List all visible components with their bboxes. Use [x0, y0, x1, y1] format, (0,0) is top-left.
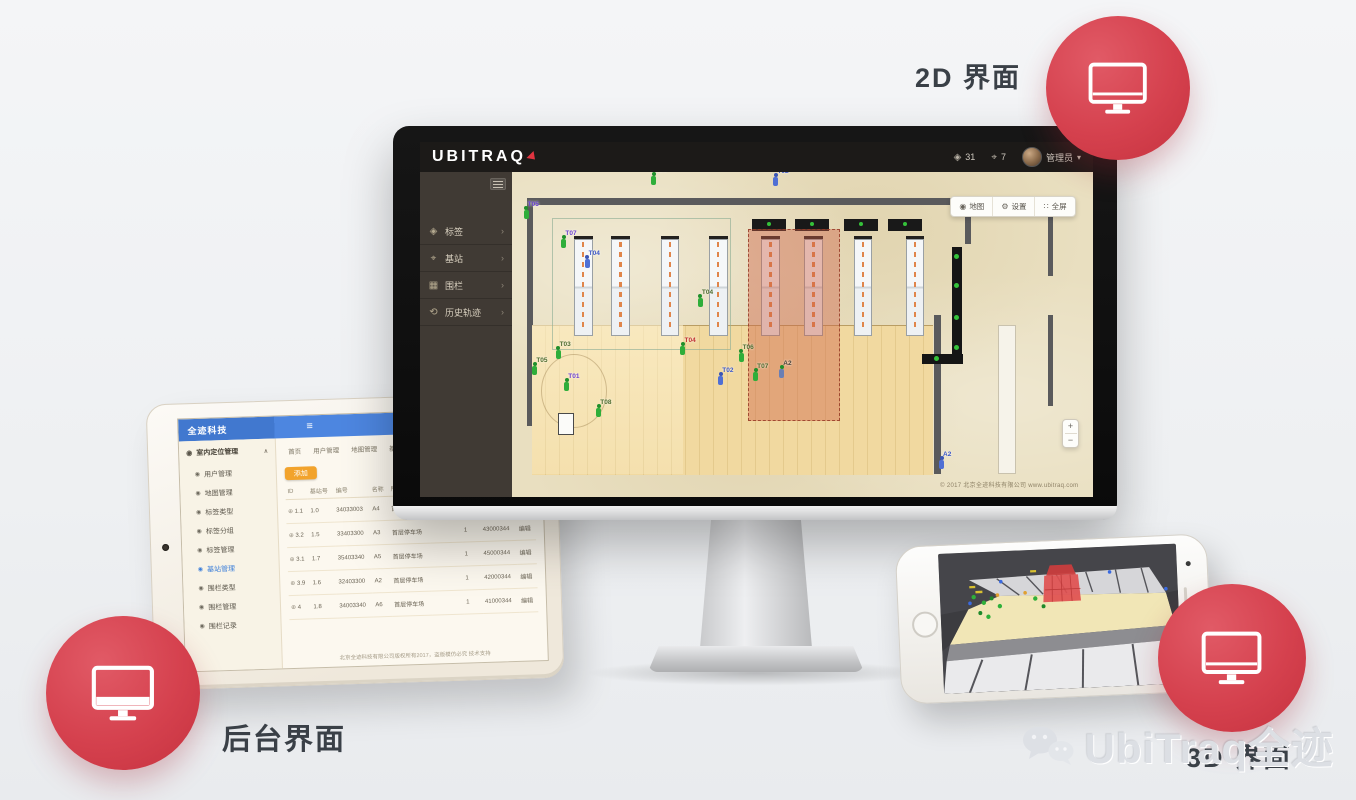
- add-button[interactable]: 添加: [285, 466, 317, 480]
- tag-marker-label: T04: [702, 289, 713, 296]
- anchor-count-icon: ⌖: [991, 152, 997, 163]
- tab[interactable]: 首页: [282, 443, 307, 458]
- sidebar-menu-item[interactable]: ⌖ 基站 ›: [420, 245, 512, 272]
- edit-link[interactable]: 编辑: [519, 588, 539, 613]
- tag-marker-label: T06: [743, 344, 754, 351]
- wall-wood-right: [934, 315, 941, 474]
- tab[interactable]: 用户管理: [307, 442, 345, 457]
- floorplan-map[interactable]: T04 T02 T05: [512, 172, 1093, 497]
- edit-link[interactable]: 编辑: [518, 564, 538, 589]
- desktop-monitor: UBITRAQ ◈ 31 ⌖ 7 管理员 ▾: [393, 126, 1117, 520]
- map-toolbar-icon: ∷: [1043, 202, 1048, 211]
- label-backend-interface: 后台界面: [222, 716, 346, 758]
- group-icon: ◉: [186, 449, 192, 457]
- tag-counter[interactable]: ◈ 31: [954, 152, 976, 163]
- person-marker-icon: [680, 346, 685, 355]
- watermark: UbiTraq全迹: [1019, 715, 1334, 776]
- tag-marker[interactable]: T07: [753, 370, 763, 384]
- scene-canvas: UBITRAQ ◈ 31 ⌖ 7 管理员 ▾: [0, 0, 1356, 800]
- map-toolbar-icon: ⚙: [1001, 202, 1008, 211]
- menu-item-label: 围栏管理: [208, 601, 236, 612]
- sidebar-item-label: 标签: [445, 225, 463, 238]
- tag-marker[interactable]: A2: [939, 458, 949, 472]
- corridor-column: [998, 325, 1017, 475]
- menu-item-dot-icon: ◉: [196, 509, 201, 516]
- person-marker-icon: [651, 176, 656, 185]
- map-toolbar-button[interactable]: ∷ 全屏: [1034, 197, 1074, 216]
- tag-marker[interactable]: T02: [773, 175, 783, 189]
- person-marker-icon: [564, 382, 569, 391]
- tablet-sidebar: ◉ 室内定位管理 ∧ ◉ 用户管理 ◉: [179, 438, 283, 671]
- person-marker-icon: [718, 376, 723, 385]
- sidebar-item-icon: ◈: [428, 226, 439, 237]
- zoom-out-button[interactable]: −: [1068, 434, 1073, 447]
- person-marker-icon: [779, 369, 784, 378]
- tag-marker[interactable]: A2: [779, 367, 789, 381]
- tag-marker-label: T04: [684, 337, 695, 344]
- tag-marker-label: T04: [589, 250, 600, 257]
- zoom-in-button[interactable]: +: [1068, 420, 1073, 433]
- storage-rack: [854, 239, 873, 337]
- monitor-stand-neck: [700, 518, 812, 648]
- anchor-strip-vertical: [952, 247, 962, 361]
- sidebar-menu-item[interactable]: ◈ 标签 ›: [420, 218, 512, 245]
- brand-logo: UBITRAQ: [432, 148, 536, 166]
- anchor-count-value: 7: [1001, 152, 1006, 162]
- tablet-footer-copyright: 北京全迹科技有限公司版权所有2017，盗版模仿必究 技术支持: [283, 647, 548, 663]
- monitor-chin: [393, 506, 1117, 520]
- edit-link[interactable]: 编辑: [517, 540, 537, 565]
- table-header-cell: 基站号: [308, 483, 334, 499]
- sidebar-item-label: 历史轨迹: [445, 306, 481, 319]
- menu-item-dot-icon: ◉: [198, 566, 203, 573]
- map-credit-text: © 2017 北京全迹科技有限公司 www.ubitraq.com: [940, 480, 1078, 489]
- anchor-counter[interactable]: ⌖ 7: [991, 152, 1006, 163]
- sidebar-item-icon: ▦: [428, 280, 439, 291]
- person-marker-icon: [753, 372, 758, 381]
- tag-marker-label: T03: [560, 341, 571, 348]
- menu-item-label: 标签分组: [206, 525, 234, 536]
- person-marker-icon: [561, 239, 566, 248]
- tab[interactable]: 地图管理: [345, 441, 383, 456]
- tablet-app-title: 全迹科技: [178, 421, 274, 437]
- 3d-scene: [938, 544, 1182, 694]
- map-toolbar-label: 全屏: [1052, 201, 1067, 212]
- monitor-screen: UBITRAQ ◈ 31 ⌖ 7 管理员 ▾: [420, 142, 1093, 497]
- tag-marker-label: A2: [943, 451, 951, 458]
- menu-item-label: 地图管理: [205, 487, 233, 498]
- anchor-bar: [844, 219, 878, 231]
- person-marker-icon: [556, 350, 561, 359]
- menu-item-label: 围栏记录: [209, 620, 237, 631]
- user-menu[interactable]: 管理员 ▾: [1022, 147, 1081, 167]
- sidebar-menu: ◈ 标签 › ⌖ 基站 › ▦: [420, 218, 512, 326]
- door-marker: [558, 413, 573, 436]
- menu-item-dot-icon: ◉: [199, 604, 204, 611]
- phone-camera: [1186, 561, 1191, 566]
- tag-marker-label: T04: [655, 172, 666, 174]
- tag-marker-label: A2: [783, 360, 791, 367]
- watermark-text: UbiTraq全迹: [1085, 715, 1334, 776]
- menu-item-dot-icon: ◉: [197, 528, 202, 535]
- tag-marker[interactable]: T04: [585, 257, 595, 271]
- chevron-down-icon: ▾: [1077, 153, 1081, 162]
- storage-rack: [906, 239, 925, 337]
- topbar-right: ◈ 31 ⌖ 7 管理员 ▾: [954, 147, 1081, 167]
- anchor-strip-horizontal: [922, 354, 963, 364]
- map-toolbar-label: 地图: [969, 201, 984, 212]
- tag-marker[interactable]: T05: [524, 208, 534, 222]
- tablet-menu: ◉ 用户管理 ◉ 地图管理 ◉ 标签类型: [180, 462, 281, 636]
- sidebar-group-label: 室内定位管理: [196, 447, 238, 458]
- sidebar-collapse-button[interactable]: [490, 178, 506, 190]
- badge-backend-monitor: [46, 616, 200, 770]
- tag-marker[interactable]: T03: [556, 348, 566, 362]
- chevron-right-icon: ›: [501, 226, 504, 236]
- app-sidebar: ◈ 标签 › ⌖ 基站 › ▦: [420, 172, 512, 497]
- map-toolbar-button[interactable]: ◉ 地图: [951, 197, 992, 216]
- brand-logo-text: UBITRAQ: [432, 148, 526, 166]
- phone-screen-3d-view[interactable]: [938, 544, 1182, 694]
- tag-marker[interactable]: T08: [596, 406, 606, 420]
- menu-item-dot-icon: ◉: [195, 490, 200, 497]
- menu-item-label: 标签类型: [205, 506, 233, 517]
- chevron-right-icon: ›: [501, 253, 504, 263]
- sidebar-menu-item[interactable]: ⟲ 历史轨迹 ›: [420, 299, 512, 326]
- menu-item-label: 围栏类型: [208, 582, 236, 593]
- person-marker-icon: [596, 408, 601, 417]
- monitor-icon: [89, 663, 157, 723]
- tag-marker[interactable]: T05: [532, 364, 542, 378]
- monitor-icon: [1086, 60, 1149, 117]
- sidebar-item-icon: ⌖: [428, 253, 439, 264]
- menu-item-label: 基站管理: [207, 563, 235, 574]
- tag-marker-label: T08: [600, 399, 611, 406]
- menu-item-label: 标签管理: [206, 544, 234, 555]
- table-header-cell: 编号: [333, 482, 370, 499]
- wall-top: [527, 198, 971, 205]
- person-marker-icon: [739, 353, 744, 362]
- monitor-stand-base: [648, 646, 864, 672]
- menu-item-dot-icon: ◉: [199, 623, 204, 630]
- person-marker-icon: [524, 210, 529, 219]
- wechat-icon: [1019, 723, 1077, 769]
- tag-marker-label: T05: [536, 357, 547, 364]
- avatar: [1022, 147, 1042, 167]
- tag-count-icon: ◈: [954, 152, 962, 163]
- chevron-right-icon: ›: [501, 280, 504, 290]
- tablet-camera: [162, 544, 169, 551]
- storage-rack: [661, 239, 680, 337]
- monitor-icon: [1199, 629, 1264, 687]
- geofence-overlay[interactable]: [748, 229, 840, 421]
- table-header-cell: ID: [285, 483, 308, 499]
- map-toolbar-icon: ◉: [959, 202, 966, 211]
- map-zoom-control: + −: [1062, 419, 1079, 448]
- user-name: 管理员: [1046, 151, 1073, 164]
- map-toolbar: ◉ 地图 ⚙ 设置 ∷ 全屏: [950, 196, 1075, 217]
- hamburger-menu-icon[interactable]: ≡: [306, 421, 313, 432]
- tag-marker-label: T05: [528, 201, 539, 208]
- person-marker-icon: [698, 298, 703, 307]
- tag-marker-label: T02: [722, 367, 733, 374]
- wall-outer-right-b: [1048, 315, 1054, 406]
- person-marker-icon: [532, 366, 537, 375]
- sidebar-item-label: 围栏: [445, 279, 463, 292]
- map-toolbar-label: 设置: [1011, 201, 1026, 212]
- map-toolbar-button[interactable]: ⚙ 设置: [992, 197, 1034, 216]
- anchor-bar: [888, 219, 922, 231]
- tag-marker[interactable]: T04: [651, 174, 661, 188]
- tag-marker[interactable]: T01: [564, 380, 574, 394]
- menu-item-label: 用户管理: [204, 468, 232, 479]
- tag-marker-label: T01: [568, 373, 579, 380]
- phone-home-button[interactable]: [912, 611, 939, 638]
- storage-rack: [709, 239, 728, 337]
- badge-2d-monitor: [1046, 16, 1190, 160]
- menu-item-dot-icon: ◉: [198, 585, 203, 592]
- label-2d-interface: 2D 界面: [915, 56, 1021, 95]
- tag-count-value: 31: [965, 152, 975, 162]
- tablet-menu-item[interactable]: ◉ 围栏记录: [184, 614, 281, 636]
- person-marker-icon: [939, 460, 944, 469]
- tag-marker-label: T07: [757, 363, 768, 370]
- sidebar-item-icon: ⟲: [428, 307, 439, 318]
- tag-marker[interactable]: T06: [739, 351, 749, 365]
- person-marker-icon: [585, 259, 590, 268]
- table-header-cell: 名称: [369, 481, 388, 497]
- sidebar-item-label: 基站: [445, 252, 463, 265]
- sidebar-group[interactable]: ◉ 室内定位管理 ∧: [179, 438, 276, 465]
- badge-3d-monitor: [1158, 584, 1306, 732]
- person-marker-icon: [773, 177, 778, 186]
- tag-marker[interactable]: T04: [680, 344, 690, 358]
- chevron-right-icon: ›: [501, 307, 504, 317]
- menu-item-dot-icon: ◉: [195, 471, 200, 478]
- app-topbar: UBITRAQ ◈ 31 ⌖ 7 管理员 ▾: [420, 142, 1093, 172]
- tag-marker[interactable]: T04: [698, 296, 708, 310]
- menu-item-dot-icon: ◉: [197, 547, 202, 554]
- brand-logo-dot-icon: [526, 151, 538, 163]
- tag-marker[interactable]: T02: [718, 374, 728, 388]
- sidebar-menu-item[interactable]: ▦ 围栏 ›: [420, 272, 512, 299]
- tag-marker-label: T07: [565, 230, 576, 237]
- chevron-up-icon: ∧: [264, 447, 269, 454]
- tag-marker[interactable]: T07: [561, 237, 571, 251]
- storage-rack: [611, 239, 630, 337]
- tag-marker-label: T02: [777, 172, 788, 175]
